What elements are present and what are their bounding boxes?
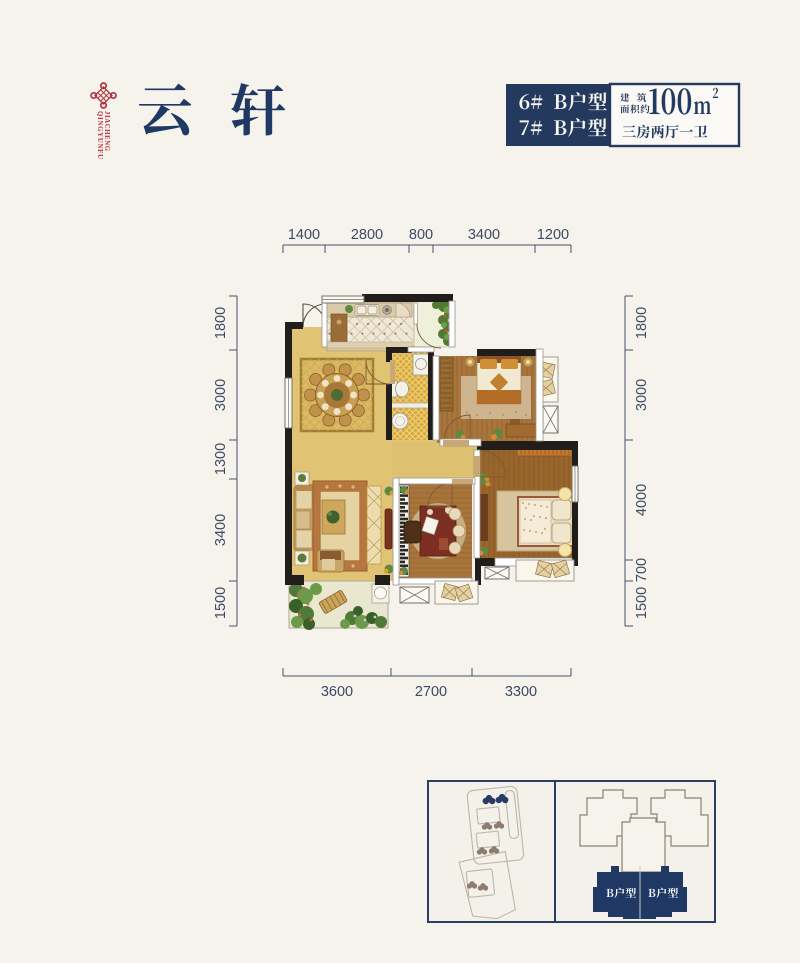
svg-text:3300: 3300	[505, 684, 537, 700]
svg-text:1300: 1300	[213, 443, 229, 475]
svg-text:3400: 3400	[213, 514, 229, 546]
svg-text:1500: 1500	[213, 587, 229, 619]
svg-text:700: 700	[634, 558, 650, 582]
svg-text:3600: 3600	[321, 684, 353, 700]
svg-text:800: 800	[409, 227, 433, 243]
svg-text:QINGYUNFU: QINGYUNFU	[96, 111, 103, 159]
svg-text:3400: 3400	[468, 227, 500, 243]
svg-text:3000: 3000	[213, 379, 229, 411]
svg-text:2700: 2700	[415, 684, 447, 700]
svg-text:1200: 1200	[537, 227, 569, 243]
svg-text:1400: 1400	[288, 227, 320, 243]
svg-text:1800: 1800	[213, 307, 229, 339]
svg-text:2800: 2800	[351, 227, 383, 243]
svg-text:1800: 1800	[634, 307, 650, 339]
svg-text:3000: 3000	[634, 379, 650, 411]
svg-text:4000: 4000	[634, 484, 650, 516]
svg-text:JIACHENG: JIACHENG	[103, 111, 110, 152]
svg-text:1500: 1500	[634, 587, 650, 619]
